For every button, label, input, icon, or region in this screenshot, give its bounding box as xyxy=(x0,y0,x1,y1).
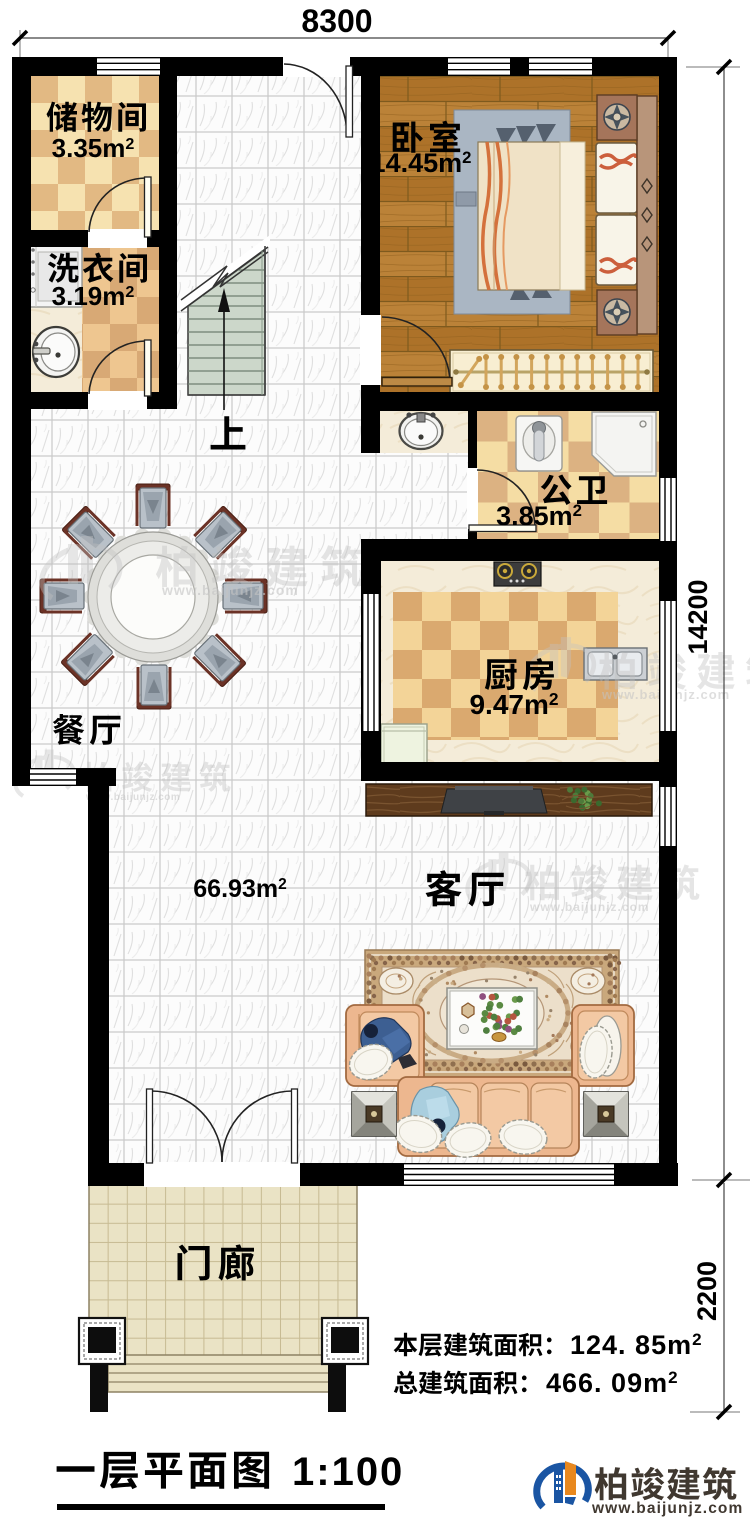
svg-text:www.baijunjz.com: www.baijunjz.com xyxy=(591,1500,743,1517)
svg-text:3.85m2: 3.85m2 xyxy=(496,501,582,531)
svg-text:2200: 2200 xyxy=(692,1261,722,1321)
svg-text:www.baijunjz.com: www.baijunjz.com xyxy=(529,900,650,914)
svg-text:9.47m2: 9.47m2 xyxy=(469,689,558,720)
svg-text:8300: 8300 xyxy=(301,3,372,39)
svg-text:www.baijunjz.com: www.baijunjz.com xyxy=(161,582,299,598)
svg-text:14200: 14200 xyxy=(683,579,713,654)
svg-text:14.45m2: 14.45m2 xyxy=(371,148,472,178)
svg-text:66.93m2: 66.93m2 xyxy=(193,875,286,903)
svg-text:3.19m2: 3.19m2 xyxy=(52,281,135,311)
svg-text:3.35m2: 3.35m2 xyxy=(52,133,135,163)
svg-text:124. 85m2: 124. 85m2 xyxy=(570,1330,703,1360)
svg-text:1:100: 1:100 xyxy=(292,1450,404,1494)
svg-text:466. 09m2: 466. 09m2 xyxy=(546,1368,679,1398)
